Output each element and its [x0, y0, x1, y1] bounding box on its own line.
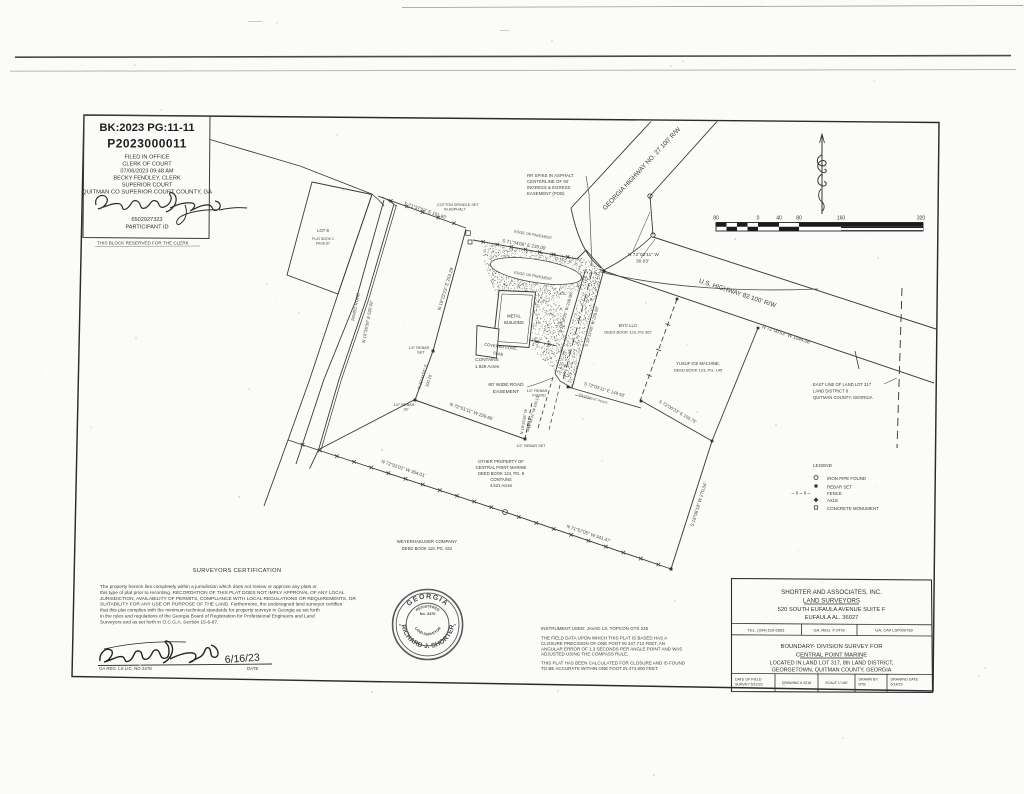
svg-text:30.03': 30.03'	[636, 259, 649, 265]
svg-text:60' WIDE ROAD: 60' WIDE ROAD	[488, 382, 524, 388]
svg-text:PAGE 87: PAGE 87	[316, 242, 330, 246]
svg-text:•: •	[454, 623, 456, 629]
svg-text:DATE: DATE	[247, 666, 258, 671]
svg-text:INGRESS & EGRESS: INGRESS & EGRESS	[527, 185, 571, 190]
svg-text:6502927323: 6502927323	[131, 217, 162, 223]
svg-text:THIS BLOCK RESERVED FOR THE C: THIS BLOCK RESERVED FOR THE CLERK	[97, 241, 190, 246]
svg-text:IN ASPHALT: IN ASPHALT	[444, 208, 466, 212]
svg-text:OTHER PROPERTY OF: OTHER PROPERTY OF	[478, 459, 524, 464]
svg-text:TO BE ACCURATE WITHIN ONE FOOT: TO BE ACCURATE WITHIN ONE FOOT IN 474,80…	[541, 666, 659, 671]
svg-text:80: 80	[796, 216, 802, 222]
svg-text:– x – x –: – x – x –	[792, 491, 811, 497]
svg-text:LAND SURVEYORS: LAND SURVEYORS	[803, 598, 860, 605]
svg-text:CONCRETE MONUMENT: CONCRETE MONUMENT	[827, 506, 879, 511]
svg-text:BECKY FENDLEY, CLERK: BECKY FENDLEY, CLERK	[113, 176, 181, 182]
svg-text:0: 0	[757, 216, 760, 222]
svg-text:RR SPIKE IN ASPHALT: RR SPIKE IN ASPHALT	[527, 173, 574, 178]
svg-text:1/2" REBAR SET: 1/2" REBAR SET	[516, 444, 546, 448]
svg-text:CLOSURE PRECISION OF ONE FOOT: CLOSURE PRECISION OF ONE FOOT IN 247,712…	[541, 641, 665, 646]
svg-text:The property hereon lies compl: The property hereon lies completely with…	[100, 584, 317, 590]
svg-text:PARTICIPANT ID: PARTICIPANT ID	[125, 225, 168, 231]
svg-text:QUITMAN CO SUPERIOR COURT COUN: QUITMAN CO SUPERIOR COURT COUNTY, GA	[82, 190, 212, 196]
svg-text:Surveyors and as set forth in: Surveyors and as set forth in O.C.G.A. S…	[100, 619, 218, 625]
svg-text:DEED BOOK 124, PG. 9: DEED BOOK 124, PG. 9	[478, 471, 525, 476]
svg-text:DEED BOOK 123, PG. 145: DEED BOOK 123, PG. 145	[674, 368, 723, 373]
svg-text:GA. REG. # 2478: GA. REG. # 2478	[813, 628, 845, 633]
svg-text:REBAR SET: REBAR SET	[827, 485, 852, 490]
svg-text:RTB: RTB	[859, 683, 867, 687]
svg-text:THIS PLAT HAS BEEN CALCULATED: THIS PLAT HAS BEEN CALCULATED FOR CLOSUR…	[541, 661, 686, 666]
svg-text:LOCATED IN LAND LOT 317, 8th L: LOCATED IN LAND LOT 317, 8th LAND DISTRI…	[770, 661, 894, 667]
svg-text:160: 160	[837, 216, 846, 222]
svg-text:DATE OF FIELD: DATE OF FIELD	[735, 678, 762, 682]
svg-text:CENTRAL POINT MARINE: CENTRAL POINT MARINE	[476, 465, 527, 470]
svg-text:LEGEND: LEGEND	[813, 463, 833, 468]
svg-text:CENTERLINE OF 60': CENTERLINE OF 60'	[527, 179, 569, 184]
svg-text:30': 30'	[404, 408, 409, 412]
svg-text:6/14/23: 6/14/23	[891, 683, 903, 687]
svg-text:DRAWN BY:: DRAWN BY:	[859, 678, 879, 682]
svg-text:FENCE: FENCE	[827, 491, 842, 496]
svg-text:GA REG. LS LIC. NO 2478: GA REG. LS LIC. NO 2478	[99, 666, 152, 671]
svg-text:P2023000011: P2023000011	[107, 137, 187, 151]
svg-text:IRON PIPE FOUND: IRON PIPE FOUND	[827, 476, 866, 481]
svg-text:80: 80	[713, 216, 719, 222]
svg-text:SCALE 1"=60': SCALE 1"=60'	[825, 681, 848, 685]
svg-text:No. 3476: No. 3476	[420, 612, 436, 616]
svg-text:AXLE: AXLE	[827, 498, 838, 503]
svg-text:QUITMAN COUNTY, GEORGIA: QUITMAN COUNTY, GEORGIA	[813, 395, 873, 400]
svg-text:SHORTER AND ASSOCIATES, INC.: SHORTER AND ASSOCIATES, INC.	[781, 589, 882, 596]
svg-text:SURVEY 6/12/23: SURVEY 6/12/23	[735, 683, 763, 687]
svg-text:BOUNDARY- DIVISION SURVEY FOR: BOUNDARY- DIVISION SURVEY FOR	[781, 644, 883, 650]
svg-text:40: 40	[776, 216, 782, 222]
svg-text:PLAT BOOK 2: PLAT BOOK 2	[312, 237, 334, 241]
svg-text:that this plat complies with t: that this plat complies with the minimum…	[100, 608, 320, 614]
svg-text:07/06/2023 09:48 AM: 07/06/2023 09:48 AM	[120, 169, 174, 175]
svg-text:N 72°02'11" W: N 72°02'11" W	[628, 252, 659, 258]
svg-text:in the rules and regulations o: in the rules and regulations of the Geor…	[100, 614, 315, 620]
svg-text:EASEMENT (POB): EASEMENT (POB)	[527, 191, 565, 196]
svg-text:1.929 Acres: 1.929 Acres	[475, 364, 500, 369]
svg-text:LAND DISTRICT 8: LAND DISTRICT 8	[813, 389, 849, 394]
svg-text:CONTAINS: CONTAINS	[490, 477, 512, 482]
svg-text:EUFAULA AL. 36027: EUFAULA AL. 36027	[805, 615, 859, 621]
svg-text:SET: SET	[417, 351, 425, 355]
svg-text:EAST LINE OF LAND LOT 317: EAST LINE OF LAND LOT 317	[813, 382, 872, 387]
svg-text:GEORGETOWN, QUITMAN COUNTY, GE: GEORGETOWN, QUITMAN COUNTY, GEORGIA	[772, 668, 892, 674]
svg-text:EASEMENT: EASEMENT	[493, 389, 519, 395]
svg-text:THE FIELD DATA UPON WHICH THIS: THE FIELD DATA UPON WHICH THIS PLAT IS B…	[541, 636, 667, 641]
svg-text:INSTRUMENT USED: JAVAD LS, T: INSTRUMENT USED: JAVAD LS, TOPCON GTS 22…	[541, 626, 649, 631]
svg-text:4.521 Acres: 4.521 Acres	[490, 483, 512, 488]
svg-text:TEL. (334) 616 6863: TEL. (334) 616 6863	[748, 628, 785, 633]
svg-text:SUPERIOR COURT: SUPERIOR COURT	[122, 183, 173, 189]
svg-text:1/2" REBAR: 1/2" REBAR	[527, 389, 548, 393]
svg-text:DRAWING # 3218: DRAWING # 3218	[782, 681, 811, 685]
svg-text:ADJUSTED USING THE COMPASS RUL: ADJUSTED USING THE COMPASS RULE.	[541, 652, 628, 657]
svg-text:WEYERHAEUSER COMPANY: WEYERHAEUSER COMPANY	[397, 539, 457, 544]
svg-text:SURVEYORS CERTIFICATION: SURVEYORS CERTIFICATION	[193, 568, 282, 574]
svg-text:DEED BOOK 119, PG. 522: DEED BOOK 119, PG. 522	[402, 546, 453, 551]
svg-text:YUSUF ICE MACHINE,: YUSUF ICE MACHINE,	[676, 361, 720, 366]
svg-text:DRAWING DATE: DRAWING DATE	[891, 678, 919, 682]
svg-text:CENTRAL POINT MARINE: CENTRAL POINT MARINE	[796, 653, 867, 659]
svg-text:520 SOUTH EUFAULA AVENUE SUITE: 520 SOUTH EUFAULA AVENUE SUITE F	[778, 607, 886, 613]
svg-text:LOT 8: LOT 8	[317, 228, 329, 233]
svg-text:DEED BOOK 123, PG 367: DEED BOOK 123, PG 367	[604, 330, 652, 335]
svg-text:BYC LLC: BYC LLC	[619, 323, 637, 328]
svg-text:BK:2023 PG:11-11: BK:2023 PG:11-11	[99, 122, 194, 134]
svg-text:GA. CA# LSF000783: GA. CA# LSF000783	[875, 628, 913, 633]
svg-text:ANGULAR ERROR OF 1.3 SECONDS P: ANGULAR ERROR OF 1.3 SECONDS PER ANGLE P…	[541, 646, 682, 651]
svg-text:this type of plat prior to rec: this type of plat prior to recording. RE…	[100, 590, 345, 596]
svg-text:320: 320	[917, 216, 926, 222]
svg-text:1/2" REBAR: 1/2" REBAR	[409, 346, 430, 350]
svg-text:COTTON SPINDLE SET: COTTON SPINDLE SET	[437, 203, 479, 207]
svg-text:SUITABILITY FOR ANY USE OR PUR: SUITABILITY FOR ANY USE OR PURPOSE OF TH…	[100, 602, 343, 608]
svg-text:FILED IN OFFICE: FILED IN OFFICE	[124, 155, 169, 161]
svg-text:METAL: METAL	[507, 314, 521, 319]
svg-text:JURISDICTION, AVAILABILITY OF: JURISDICTION, AVAILABILITY OF PERMITS, C…	[100, 596, 356, 602]
svg-text:BUILDING: BUILDING	[504, 320, 524, 325]
svg-text:CLERK OF COURT: CLERK OF COURT	[122, 162, 172, 168]
svg-text:•: •	[399, 623, 401, 629]
